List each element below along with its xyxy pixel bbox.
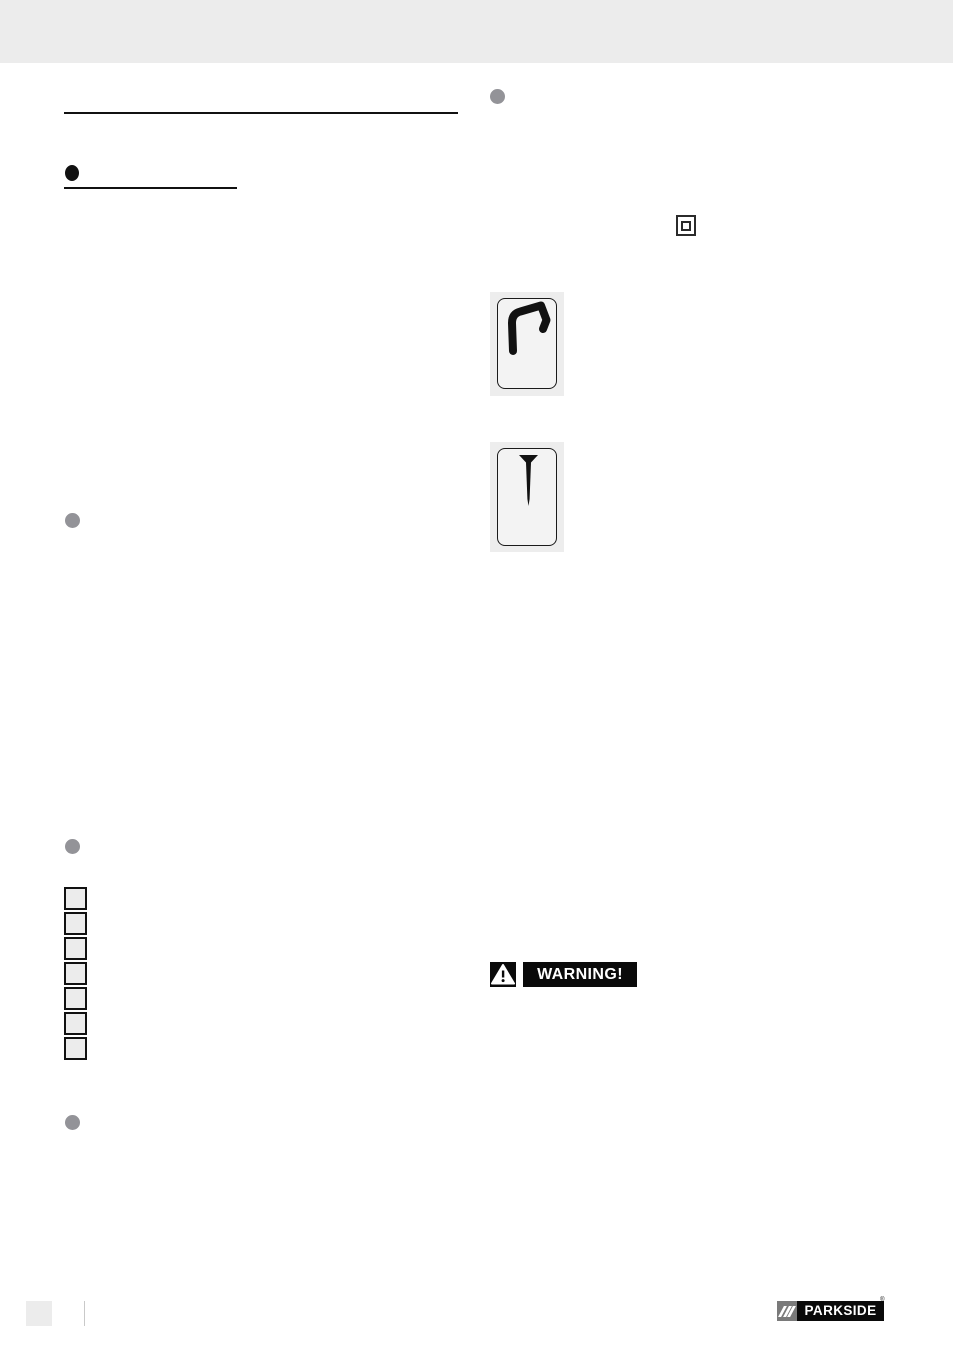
- section-divider-rule: [64, 112, 458, 114]
- item-number-square: [64, 887, 87, 910]
- staple-icon: [498, 299, 558, 390]
- staple-figure: [490, 292, 564, 396]
- nail-figure: [490, 442, 564, 552]
- double-square-icon: [676, 215, 696, 236]
- footer-separator-line: [84, 1301, 85, 1326]
- parkside-logo: PARKSIDE®: [777, 1301, 884, 1321]
- item-number-square: [64, 962, 87, 985]
- manual-page: WARNING! PARKSIDE®: [0, 0, 953, 1352]
- item-number-square: [64, 1012, 87, 1035]
- header-band: [0, 0, 953, 63]
- staple-figure-frame: [497, 298, 557, 389]
- bullet-point: [65, 513, 80, 528]
- brand-slashes-icon: [777, 1301, 797, 1321]
- item-number-squares: [64, 887, 87, 1062]
- item-number-square: [64, 1037, 87, 1060]
- page-number-box: [26, 1301, 52, 1326]
- item-number-square: [64, 912, 87, 935]
- nail-icon: [498, 449, 558, 547]
- warning-label: WARNING!: [523, 962, 637, 987]
- nail-figure-frame: [497, 448, 557, 546]
- bullet-point: [490, 89, 505, 104]
- warning-triangle-icon: [490, 962, 516, 987]
- heading-underline: [64, 187, 237, 189]
- item-number-square: [64, 937, 87, 960]
- item-number-square: [64, 987, 87, 1010]
- heading-bullet: [65, 165, 79, 181]
- bullet-point: [65, 1115, 80, 1130]
- bullet-point: [65, 839, 80, 854]
- double-square-inner: [681, 221, 691, 231]
- registered-mark: ®: [880, 1297, 885, 1303]
- brand-name: PARKSIDE®: [797, 1301, 884, 1321]
